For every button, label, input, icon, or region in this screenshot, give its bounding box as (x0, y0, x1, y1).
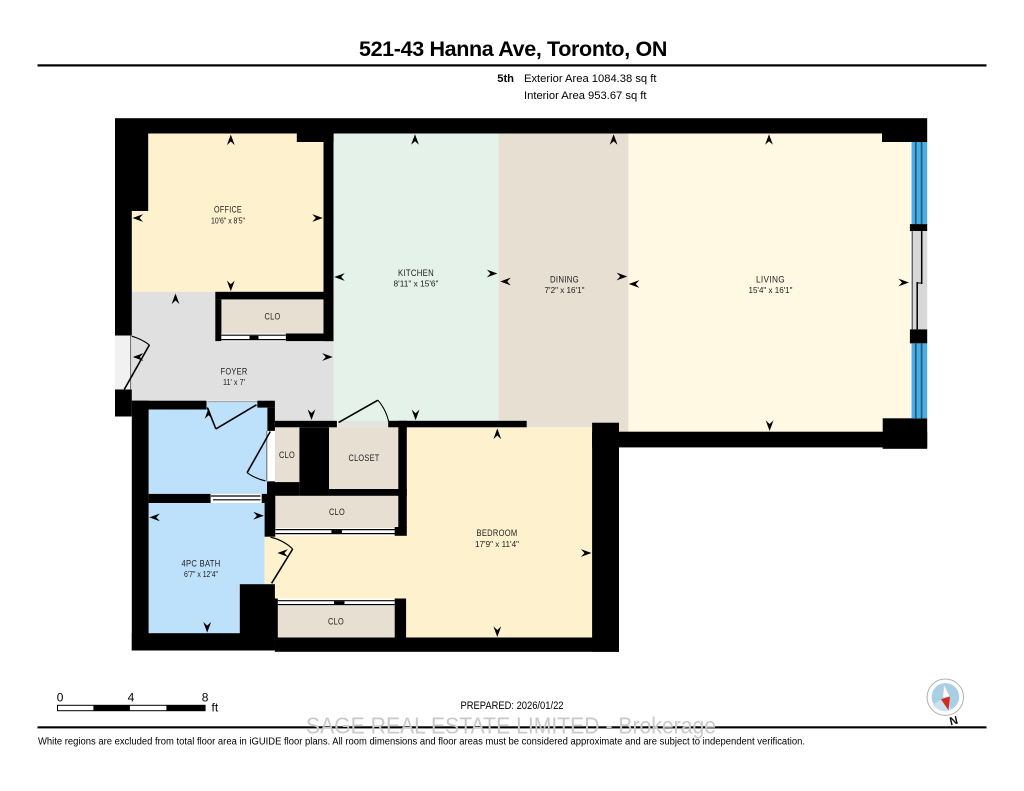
svg-text:KITCHEN: KITCHEN (398, 268, 434, 278)
svg-text:4PC BATH: 4PC BATH (182, 559, 221, 569)
svg-text:15'4" x 16'1": 15'4" x 16'1" (749, 285, 793, 295)
svg-text:Exterior Area 1084.38 sq ft: Exterior Area 1084.38 sq ft (524, 73, 657, 85)
svg-text:8: 8 (202, 691, 209, 705)
svg-text:BEDROOM: BEDROOM (477, 528, 518, 538)
svg-text:17'9" x 11'4": 17'9" x 11'4" (475, 539, 519, 549)
svg-text:CLO: CLO (329, 507, 345, 517)
svg-text:4: 4 (128, 691, 135, 705)
svg-text:11' x 7': 11' x 7' (223, 377, 245, 387)
svg-text:10'6" x 8'5": 10'6" x 8'5" (211, 216, 245, 226)
svg-text:DINING: DINING (550, 275, 579, 285)
svg-text:CLO: CLO (265, 312, 281, 322)
svg-text:SAGE REAL ESTATE LIMITED - Bro: SAGE REAL ESTATE LIMITED - Brokerage (306, 713, 716, 739)
svg-text:PREPARED: 2026/01/22: PREPARED: 2026/01/22 (461, 700, 564, 712)
svg-text:LIVING: LIVING (756, 275, 785, 285)
svg-text:521-43 Hanna Ave, Toronto, ON: 521-43 Hanna Ave, Toronto, ON (359, 37, 667, 61)
svg-text:CLO: CLO (328, 617, 344, 627)
svg-text:CLOSET: CLOSET (349, 453, 380, 463)
svg-text:8'11" x 15'6": 8'11" x 15'6" (394, 279, 439, 289)
svg-text:ft: ft (212, 701, 219, 715)
svg-text:7'2" x 16'1": 7'2" x 16'1" (545, 285, 585, 295)
svg-text:White regions are excluded fro: White regions are excluded from total fl… (38, 737, 805, 748)
svg-text:6'7" x 12'4": 6'7" x 12'4" (184, 569, 218, 579)
svg-text:0: 0 (57, 691, 64, 705)
svg-text:5th: 5th (497, 73, 514, 85)
svg-text:FOYER: FOYER (221, 367, 248, 377)
svg-text:Interior Area 953.67 sq ft: Interior Area 953.67 sq ft (524, 90, 647, 102)
svg-text:CLO: CLO (279, 450, 295, 460)
svg-text:OFFICE: OFFICE (214, 205, 242, 215)
